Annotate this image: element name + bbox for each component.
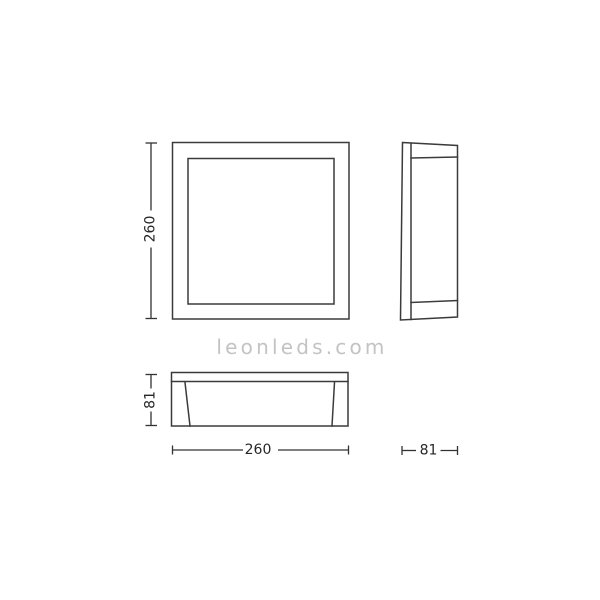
dim-bottom-depth-label: 81 <box>143 391 159 409</box>
front-outer-frame <box>173 143 350 320</box>
dim-side-depth: 81 <box>402 443 458 459</box>
technical-drawing-page: 260 81 260 81 leonleds.com <box>0 0 600 600</box>
bottom-left-taper <box>185 383 190 427</box>
drawing-svg: 260 81 260 81 leonleds.com <box>0 0 600 600</box>
dim-bottom-width: 260 <box>173 442 349 458</box>
bottom-view <box>172 373 349 427</box>
bottom-right-taper <box>332 383 335 427</box>
dim-side-depth-label: 81 <box>420 443 438 459</box>
bottom-outline <box>172 373 349 427</box>
side-outline <box>401 143 458 321</box>
dim-front-height-label: 260 <box>143 216 159 243</box>
side-top-band <box>411 157 458 158</box>
front-view <box>173 143 350 320</box>
side-bottom-band <box>411 301 458 303</box>
front-inner-panel <box>188 159 334 305</box>
dim-front-height: 260 <box>143 143 159 319</box>
dim-bottom-width-label: 260 <box>245 442 272 458</box>
watermark-text: leonleds.com <box>216 335 387 359</box>
side-view <box>401 143 458 321</box>
dim-bottom-depth: 81 <box>143 375 159 426</box>
